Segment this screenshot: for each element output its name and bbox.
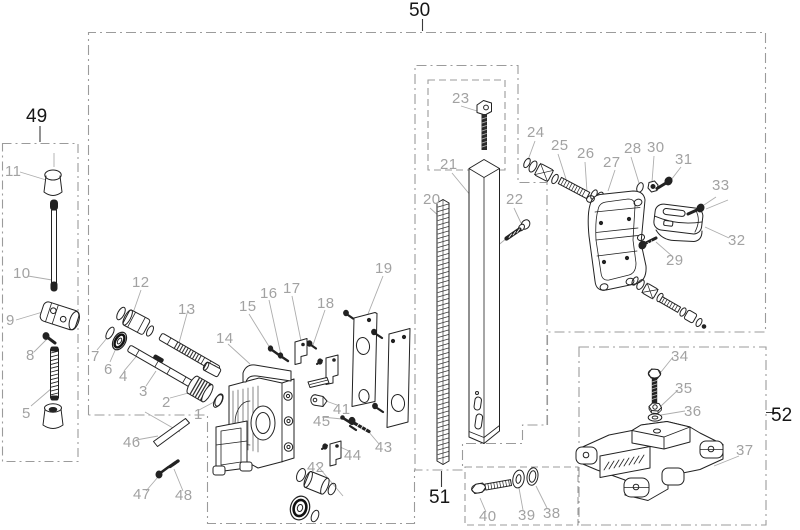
part-label-13: 13 [178, 301, 196, 318]
part-32-clamp-pad [653, 203, 704, 235]
part-14-gearbox-housing [202, 361, 294, 475]
part-label-1: 1 [194, 406, 203, 423]
part-15-pin [268, 346, 279, 355]
group-label-51: 51 [429, 487, 450, 508]
part-label-9: 9 [6, 312, 15, 329]
part-label-10: 10 [13, 265, 31, 282]
part-31-bolt [657, 176, 673, 189]
part-label-37: 37 [736, 442, 754, 459]
part-16-pin [278, 353, 288, 361]
part-label-42: 42 [307, 459, 325, 476]
part-38-washer [526, 467, 540, 486]
part-46-shaft-pin [154, 419, 190, 447]
part-39-washer [511, 469, 525, 489]
part-label-44: 44 [344, 447, 362, 464]
part-label-20: 20 [423, 191, 441, 208]
group-label-52: 52 [771, 405, 792, 426]
part-label-16: 16 [260, 285, 278, 302]
part-label-7: 7 [91, 348, 100, 365]
part-37-base [576, 422, 723, 501]
part-label-18: 18 [317, 295, 335, 312]
part-label-32: 32 [728, 232, 746, 249]
part-11-knob [44, 170, 62, 196]
part-label-46: 46 [123, 434, 141, 451]
part-label-26: 26 [577, 145, 595, 162]
part-label-33: 33 [712, 177, 730, 194]
part-label-4: 4 [119, 368, 128, 385]
part-label-36: 36 [684, 403, 702, 420]
part-label-6: 6 [104, 361, 113, 378]
part-label-19: 19 [375, 260, 393, 277]
boundary-box-49 [3, 144, 79, 462]
part-label-11: 11 [5, 163, 21, 180]
part-44-bracket [322, 441, 341, 466]
part-label-28: 28 [624, 140, 642, 157]
part-43-bolt [349, 417, 369, 431]
group-label-49: 49 [26, 106, 47, 127]
part-label-27: 27 [603, 154, 621, 171]
part-17-bracket [295, 339, 307, 365]
part-label-45: 45 [313, 413, 331, 430]
part-label-3: 3 [139, 383, 148, 400]
group-label-50: 50 [409, 0, 430, 21]
part-47-screw [156, 467, 169, 478]
part-label-34: 34 [671, 348, 689, 365]
part-label-47: 47 [133, 486, 151, 503]
exploded-parts-diagram: 1234567891011121314151617181920212223242… [0, 0, 800, 530]
part-label-22: 22 [506, 191, 524, 208]
part-27-carriage-plate [586, 191, 646, 291]
part-label-21: 21 [440, 156, 458, 173]
part-6-bearing [110, 330, 130, 352]
part-19-cover-plates [344, 310, 410, 427]
part-label-38: 38 [543, 505, 561, 522]
part-label-43: 43 [375, 439, 393, 456]
part-18-screw [307, 341, 316, 349]
part-gib-plate [308, 378, 329, 388]
part-label-35: 35 [675, 380, 693, 397]
part-34-bolt [648, 369, 661, 403]
part-22-bolt [507, 218, 532, 238]
part-label-39: 39 [518, 507, 536, 524]
part-bottom-oring [310, 509, 321, 523]
part-label-30: 30 [647, 139, 665, 156]
part-lower-roller-shaft [631, 276, 706, 328]
part-bottom-bearing [288, 494, 313, 522]
part-label-23: 23 [452, 90, 470, 107]
part-label-8: 8 [26, 347, 35, 364]
part-35-nut [649, 403, 662, 414]
part-label-40: 40 [479, 508, 497, 525]
part-12-bushing [121, 309, 151, 336]
part-label-25: 25 [551, 137, 569, 154]
part-21-column [469, 160, 500, 444]
part-10-handle-rod [51, 200, 58, 291]
part-label-48: 48 [175, 487, 193, 504]
part-label-5: 5 [22, 405, 31, 422]
diagram-canvas: 1234567891011121314151617181920212223242… [0, 0, 800, 530]
part-36-washer [648, 414, 662, 421]
part-41-nut-bolt [311, 395, 327, 407]
part-label-24: 24 [527, 124, 545, 141]
part-label-29: 29 [666, 252, 684, 269]
part-label-14: 14 [216, 330, 234, 347]
part-label-2: 2 [162, 394, 171, 411]
part-label-41: 41 [333, 401, 351, 418]
part-48-spring-pin [170, 461, 178, 467]
part-5-cone-knob [43, 404, 63, 429]
part-label-15: 15 [239, 298, 257, 315]
part-label-31: 31 [675, 151, 693, 168]
part-40-hex-bolt [471, 478, 512, 494]
part-label-12: 12 [132, 274, 150, 291]
part-30-nut [648, 181, 658, 192]
part-label-17: 17 [283, 280, 301, 297]
part-9-handle-hub [39, 301, 82, 332]
